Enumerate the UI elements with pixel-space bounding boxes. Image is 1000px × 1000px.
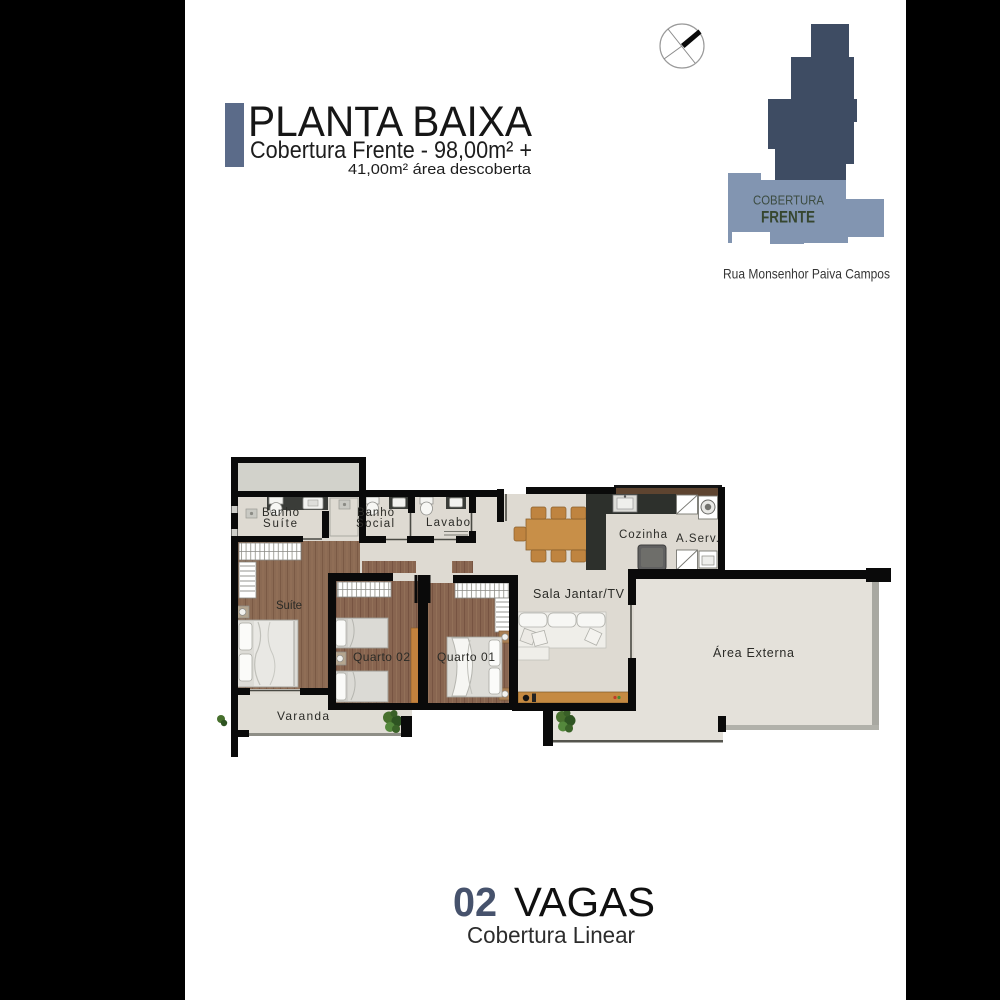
svg-text:Varanda: Varanda bbox=[277, 709, 329, 723]
svg-text:FRENTE: FRENTE bbox=[761, 209, 815, 227]
svg-text:A.Serv.: A.Serv. bbox=[676, 533, 719, 545]
svg-text:Área Externa: Área Externa bbox=[713, 645, 794, 660]
svg-text:COBERTURA: COBERTURA bbox=[753, 193, 824, 208]
svg-text:Suíte: Suíte bbox=[263, 518, 297, 530]
svg-text:Cozinha: Cozinha bbox=[619, 529, 668, 541]
svg-text:Rua Monsenhor Paiva Campos: Rua Monsenhor Paiva Campos bbox=[723, 266, 890, 282]
svg-text:VAGAS: VAGAS bbox=[514, 879, 655, 925]
svg-text:41,00m² área descoberta: 41,00m² área descoberta bbox=[348, 161, 532, 178]
svg-text:02: 02 bbox=[453, 879, 497, 925]
svg-text:Social: Social bbox=[356, 518, 394, 530]
svg-text:Quarto 01: Quarto 01 bbox=[437, 650, 495, 664]
svg-text:Suíte: Suíte bbox=[276, 600, 302, 612]
svg-text:Cobertura Linear: Cobertura Linear bbox=[467, 922, 635, 948]
svg-text:Cobertura Frente - 98,00m² +: Cobertura Frente - 98,00m² + bbox=[250, 137, 532, 164]
svg-text:Sala Jantar/TV: Sala Jantar/TV bbox=[533, 587, 625, 601]
svg-text:Quarto 02: Quarto 02 bbox=[353, 650, 410, 664]
